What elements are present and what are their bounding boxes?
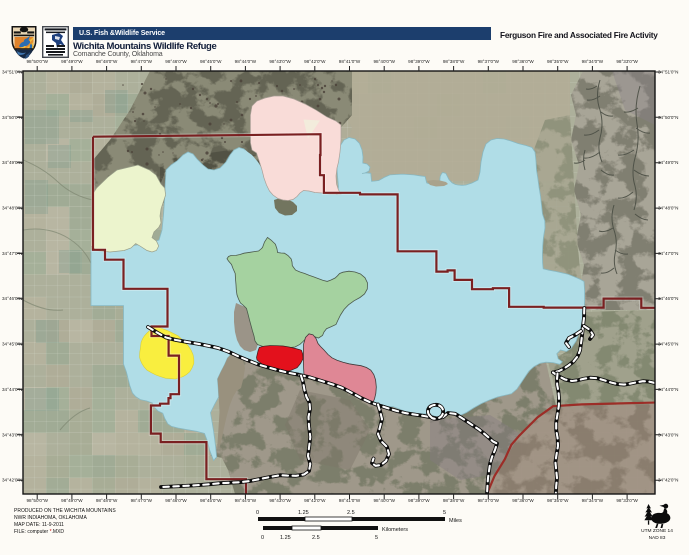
svg-text:98°34'0"W: 98°34'0"W xyxy=(582,59,604,64)
svg-text:98°35'0"W: 98°35'0"W xyxy=(547,498,569,503)
svg-text:98°44'0"W: 98°44'0"W xyxy=(235,59,257,64)
svg-text:34°51'0"N: 34°51'0"N xyxy=(658,70,678,75)
svg-text:34°47'0"N: 34°47'0"N xyxy=(2,251,22,256)
svg-text:98°50'0"W: 98°50'0"W xyxy=(26,59,48,64)
svg-text:34°43'0"N: 34°43'0"N xyxy=(658,432,678,437)
svg-text:0: 0 xyxy=(256,510,259,516)
svg-text:98°37'0"W: 98°37'0"W xyxy=(478,59,500,64)
svg-text:34°47'0"N: 34°47'0"N xyxy=(658,251,678,256)
svg-text:98°33'0"W: 98°33'0"W xyxy=(616,498,638,503)
svg-text:98°38'0"W: 98°38'0"W xyxy=(443,59,465,64)
svg-text:98°39'0"W: 98°39'0"W xyxy=(408,59,430,64)
svg-text:98°45'0"W: 98°45'0"W xyxy=(200,498,222,503)
svg-text:0: 0 xyxy=(261,535,264,541)
svg-text:98°50'0"W: 98°50'0"W xyxy=(26,498,48,503)
svg-text:1.25: 1.25 xyxy=(280,535,291,541)
svg-text:98°40'0"W: 98°40'0"W xyxy=(373,59,395,64)
svg-text:98°45'0"W: 98°45'0"W xyxy=(200,59,222,64)
svg-text:NAD 83: NAD 83 xyxy=(649,535,666,541)
svg-text:Kilometers: Kilometers xyxy=(382,527,408,533)
svg-text:98°36'0"W: 98°36'0"W xyxy=(512,59,534,64)
svg-text:34°48'0"N: 34°48'0"N xyxy=(2,206,22,211)
svg-text:98°36'0"W: 98°36'0"W xyxy=(512,498,534,503)
svg-text:34°46'0"N: 34°46'0"N xyxy=(2,296,22,301)
svg-text:98°46'0"W: 98°46'0"W xyxy=(165,59,187,64)
svg-text:1.25: 1.25 xyxy=(298,510,309,516)
svg-text:98°35'0"W: 98°35'0"W xyxy=(547,59,569,64)
svg-text:34°50'0"N: 34°50'0"N xyxy=(658,115,678,120)
svg-text:34°48'0"N: 34°48'0"N xyxy=(658,206,678,211)
svg-text:UTM ZONE 14: UTM ZONE 14 xyxy=(641,528,673,534)
svg-text:5: 5 xyxy=(375,535,378,541)
svg-text:98°43'0"W: 98°43'0"W xyxy=(269,59,291,64)
svg-text:34°45'0"N: 34°45'0"N xyxy=(2,342,22,347)
svg-text:98°42'0"W: 98°42'0"W xyxy=(304,498,326,503)
svg-text:98°37'0"W: 98°37'0"W xyxy=(478,498,500,503)
svg-text:2.5: 2.5 xyxy=(312,535,320,541)
svg-text:98°46'0"W: 98°46'0"W xyxy=(165,498,187,503)
svg-text:98°48'0"W: 98°48'0"W xyxy=(96,498,118,503)
svg-text:MAP DATE: 11-9-2011: MAP DATE: 11-9-2011 xyxy=(14,522,64,528)
svg-text:98°47'0"W: 98°47'0"W xyxy=(131,59,153,64)
svg-text:Miles: Miles xyxy=(449,518,462,524)
svg-text:98°40'0"W: 98°40'0"W xyxy=(373,498,395,503)
svg-text:98°41'0"W: 98°41'0"W xyxy=(339,498,361,503)
svg-text:34°49'0"N: 34°49'0"N xyxy=(658,160,678,165)
svg-text:34°51'0"N: 34°51'0"N xyxy=(2,70,22,75)
svg-text:98°48'0"W: 98°48'0"W xyxy=(96,59,118,64)
svg-text:98°41'0"W: 98°41'0"W xyxy=(339,59,361,64)
svg-text:98°49'0"W: 98°49'0"W xyxy=(61,59,83,64)
svg-text:34°46'0"N: 34°46'0"N xyxy=(658,296,678,301)
svg-text:NWR INDIAHOMA, OKLAHOMA: NWR INDIAHOMA, OKLAHOMA xyxy=(14,515,87,521)
svg-text:34°45'0"N: 34°45'0"N xyxy=(658,342,678,347)
svg-text:98°39'0"W: 98°39'0"W xyxy=(408,498,430,503)
svg-text:34°43'0"N: 34°43'0"N xyxy=(2,432,22,437)
svg-text:98°49'0"W: 98°49'0"W xyxy=(61,498,83,503)
svg-text:98°33'0"W: 98°33'0"W xyxy=(616,59,638,64)
svg-text:98°44'0"W: 98°44'0"W xyxy=(235,498,257,503)
svg-text:PRODUCED ON THE WICHITA MOUNTA: PRODUCED ON THE WICHITA MOUNTAINS xyxy=(14,508,116,514)
svg-text:34°42'0"N: 34°42'0"N xyxy=(658,478,678,483)
svg-text:98°34'0"W: 98°34'0"W xyxy=(582,498,604,503)
svg-text:34°49'0"N: 34°49'0"N xyxy=(2,160,22,165)
svg-text:98°43'0"W: 98°43'0"W xyxy=(269,498,291,503)
svg-text:34°42'0"N: 34°42'0"N xyxy=(2,478,22,483)
svg-text:98°38'0"W: 98°38'0"W xyxy=(443,498,465,503)
svg-text:FILE: computer *.MXD: FILE: computer *.MXD xyxy=(14,529,64,535)
svg-text:5: 5 xyxy=(443,510,446,516)
svg-text:2.5: 2.5 xyxy=(347,510,355,516)
svg-text:34°44'0"N: 34°44'0"N xyxy=(2,387,22,392)
svg-text:34°44'0"N: 34°44'0"N xyxy=(658,387,678,392)
svg-text:98°42'0"W: 98°42'0"W xyxy=(304,59,326,64)
svg-text:34°50'0"N: 34°50'0"N xyxy=(2,115,22,120)
svg-text:98°47'0"W: 98°47'0"W xyxy=(131,498,153,503)
